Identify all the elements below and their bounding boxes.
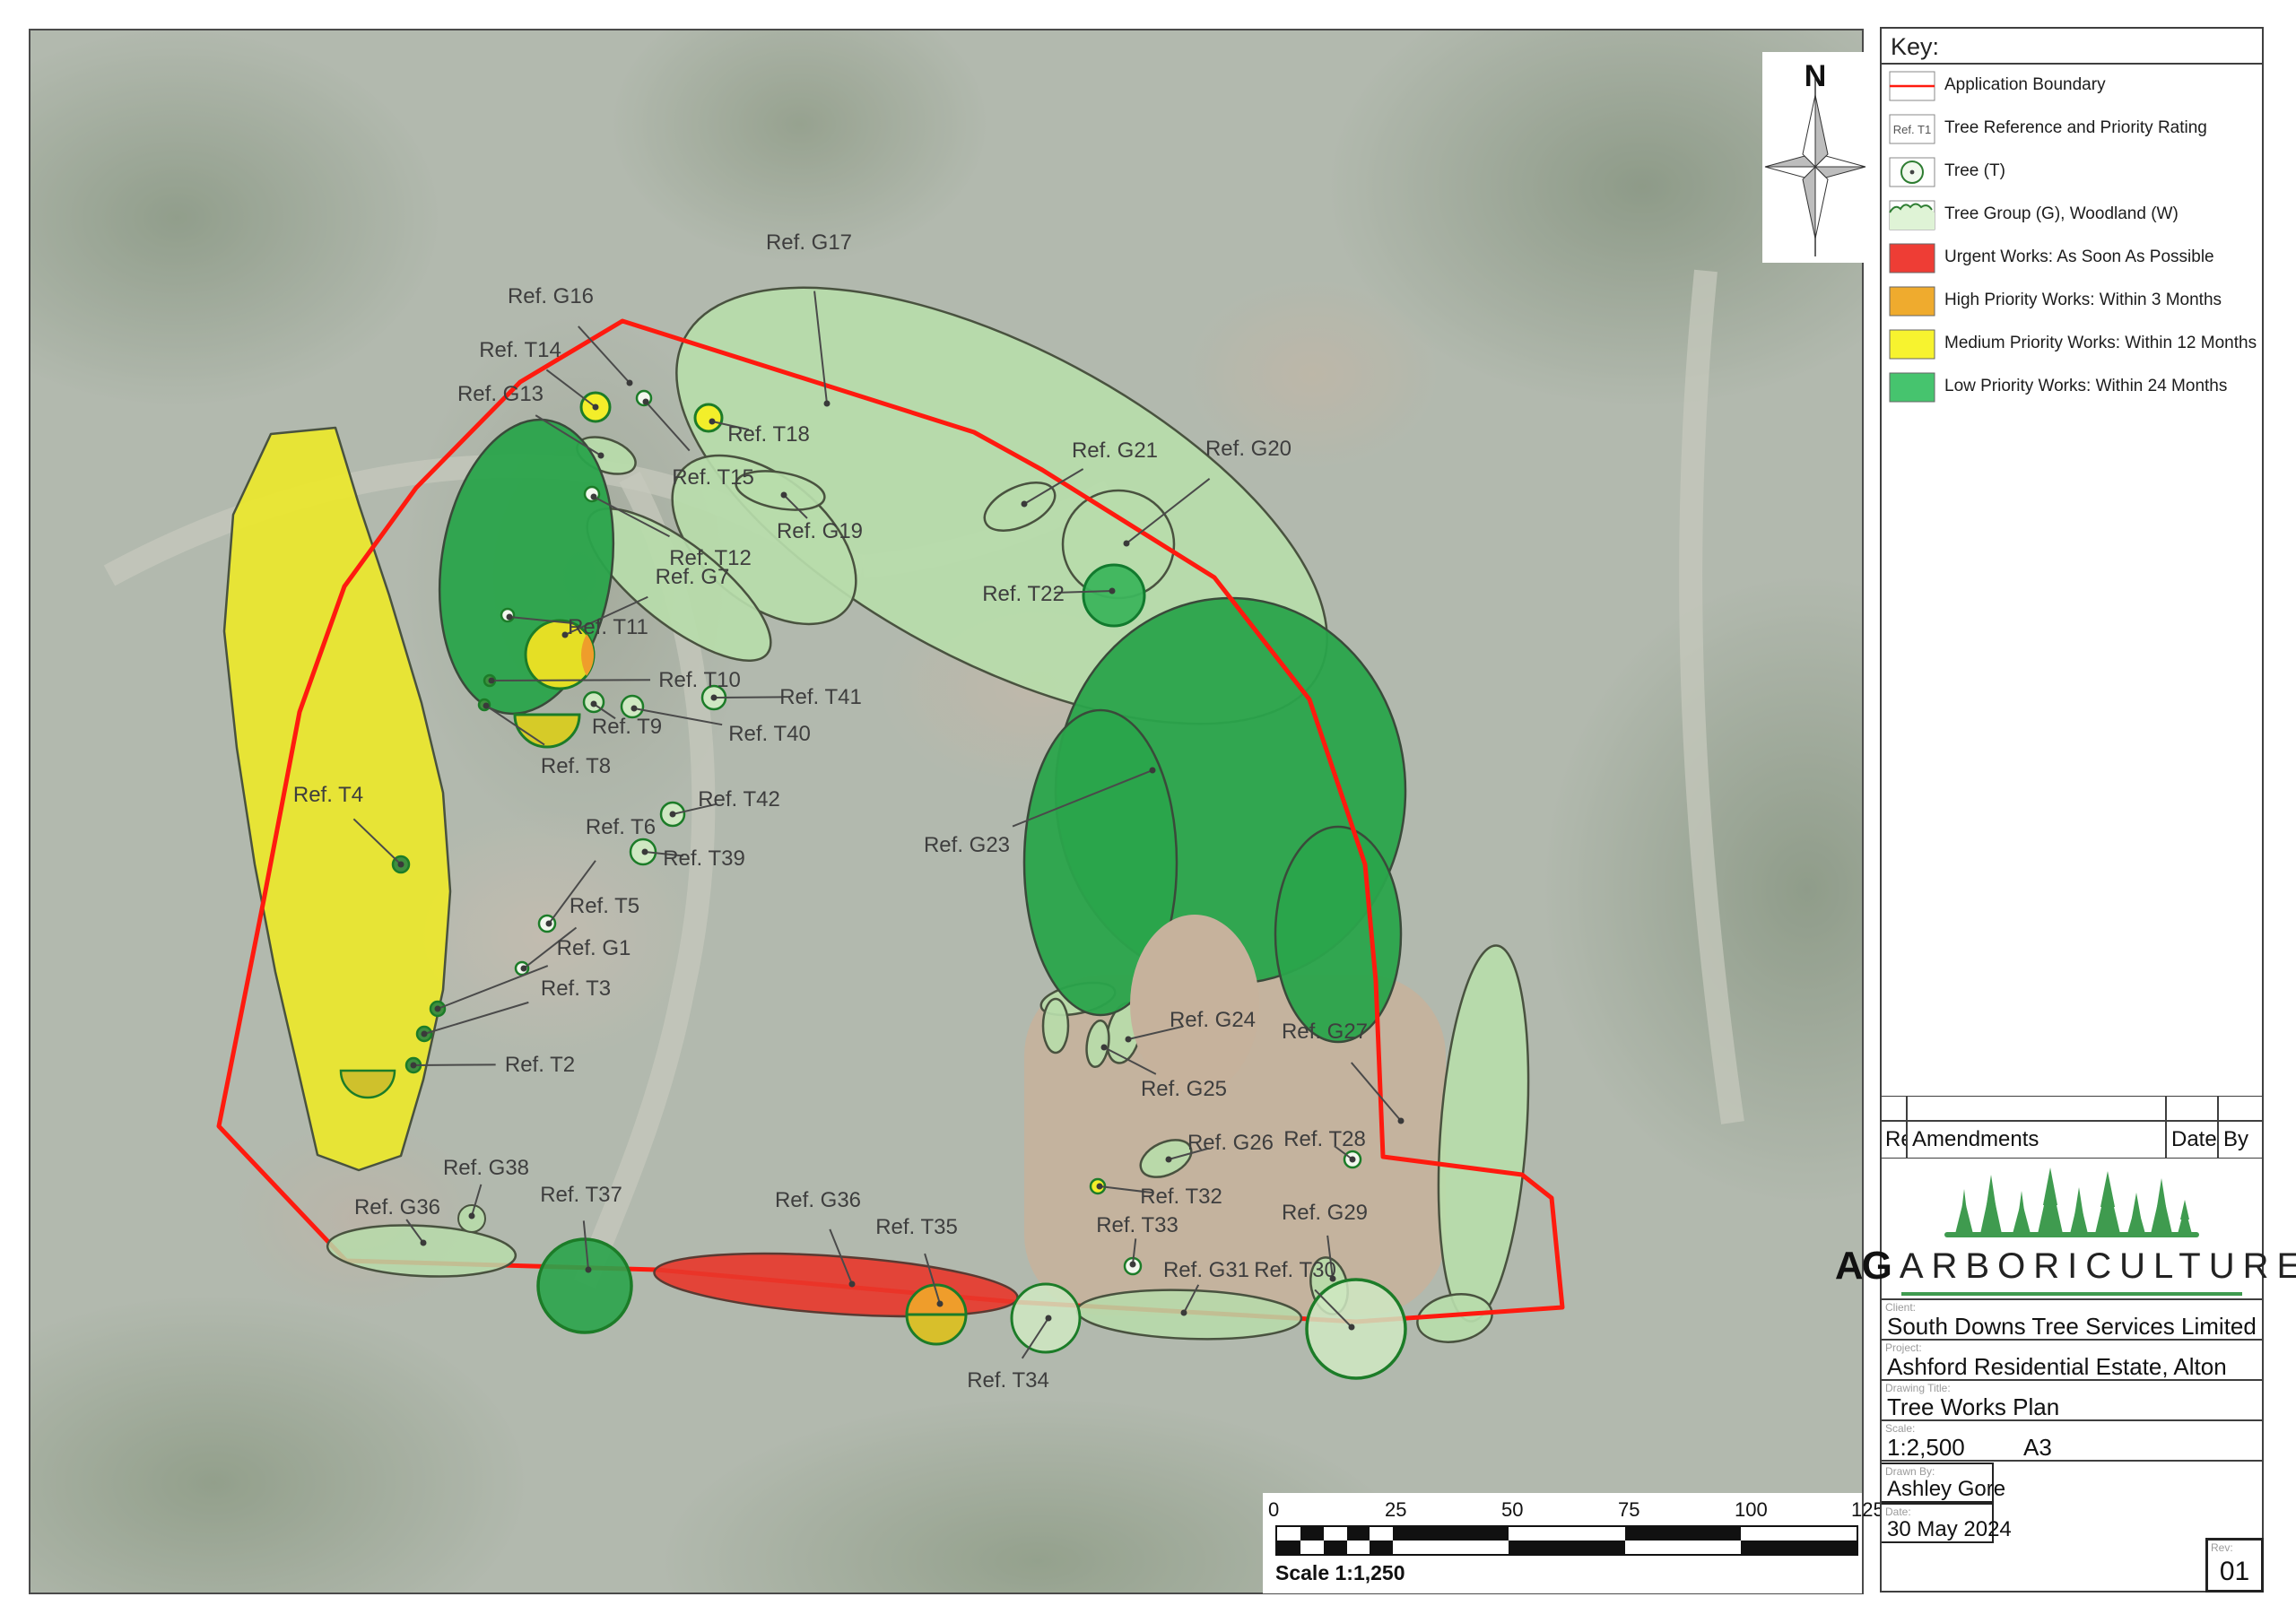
- scale-bar-cell: [1324, 1541, 1347, 1554]
- logo-underline: [1901, 1292, 2242, 1296]
- map-label: Ref. T4: [293, 783, 363, 807]
- leader-dot: [489, 678, 495, 684]
- scale-bar-cell: [1625, 1527, 1741, 1541]
- map-label: Ref. T11: [568, 615, 648, 639]
- map-label: Ref. G20: [1205, 437, 1291, 461]
- map-label: Ref. T5: [570, 894, 639, 918]
- map-label: Ref. G17: [766, 230, 852, 255]
- map-label: Ref. T6: [586, 815, 656, 839]
- scale-bar-cell: [1300, 1527, 1324, 1541]
- scale-bar-rows: [1275, 1525, 1858, 1556]
- map-label: Ref. T8: [541, 754, 611, 778]
- scale-bar-cell: [1741, 1541, 1857, 1554]
- scale-tick-label: 100: [1735, 1498, 1768, 1522]
- scale-tick-label: 0: [1268, 1498, 1279, 1522]
- map-label: Ref. T42: [698, 787, 780, 811]
- map-label: Ref. G7: [656, 565, 730, 589]
- application-boundary-swatch-icon: [1889, 71, 1935, 101]
- leader-dot: [398, 862, 404, 868]
- leader-dot: [709, 419, 716, 425]
- amendments-empty-cell: [1907, 1096, 2166, 1121]
- key-item: Tree Group (G), Woodland (W): [1882, 194, 2262, 237]
- key-item-label: Tree Group (G), Woodland (W): [1944, 204, 2179, 224]
- leader-dot: [1398, 1118, 1405, 1124]
- key-item: Urgent Works: As Soon As Possible: [1882, 237, 2262, 280]
- leader-dot: [586, 1267, 592, 1273]
- tree-reference-swatch-icon: Ref. T1: [1889, 114, 1935, 144]
- key-item-label: Urgent Works: As Soon As Possible: [1944, 247, 2214, 267]
- map-label: Ref. T15: [672, 465, 754, 490]
- leader-line: [714, 697, 783, 698]
- key-item: High Priority Works: Within 3 Months: [1882, 280, 2262, 323]
- titleblock-row: Project: Ashford Residential Estate, Alt…: [1882, 1341, 2262, 1381]
- key-item-label: High Priority Works: Within 3 Months: [1944, 291, 2222, 310]
- key-item-label: Application Boundary: [1944, 75, 2106, 95]
- priority-colour-swatch-icon: [1889, 243, 1935, 273]
- key-item-label: Tree Reference and Priority Rating: [1944, 118, 2207, 138]
- tree-t35-bottom: [907, 1315, 966, 1344]
- tree-group-g27: [1427, 942, 1539, 1324]
- woodland-notch: [1130, 915, 1259, 1094]
- scale-bar-cell: [1509, 1541, 1624, 1554]
- scale-tick-label: 75: [1618, 1498, 1639, 1522]
- date-box: Date: 30 May 2024: [1882, 1503, 1994, 1543]
- leader-dot: [1109, 588, 1116, 595]
- tree-symbol-yellow: [695, 404, 722, 431]
- rev-value: 01: [2208, 1557, 2261, 1587]
- woodland-g23: [1275, 827, 1401, 1042]
- tree-group-swatch-icon: [1889, 200, 1935, 230]
- map-label: Ref. T30: [1254, 1258, 1336, 1282]
- priority-colour-swatch-icon: [1889, 329, 1935, 360]
- map-label: Ref. T22: [982, 582, 1065, 606]
- scale-bar-cell: [1741, 1527, 1857, 1541]
- map-label: Ref. G23: [924, 833, 1010, 857]
- scale-bar-cell: [1370, 1541, 1393, 1554]
- leader-line: [578, 326, 630, 383]
- tree-t37: [538, 1239, 631, 1332]
- map-label: Ref. G13: [457, 382, 544, 406]
- key-item-label: Low Priority Works: Within 24 Months: [1944, 377, 2227, 396]
- map-label: Ref. T40: [728, 722, 811, 746]
- map-label: Ref. G24: [1170, 1008, 1256, 1032]
- titleblock-fields: Client: South Downs Tree Services Limite…: [1882, 1300, 2262, 1462]
- map-label: Ref. T2: [505, 1053, 575, 1077]
- scale-bar-cell: [1324, 1527, 1347, 1541]
- leader-dot: [781, 492, 787, 499]
- map-label: Ref. G36: [775, 1188, 861, 1212]
- amendments-header-by: By: [2218, 1121, 2264, 1159]
- rev-box: Rev: 01: [2205, 1538, 2264, 1593]
- scale-bar-cell: [1625, 1541, 1741, 1554]
- leader-dot: [937, 1301, 944, 1307]
- map-label: Ref. T34: [967, 1368, 1049, 1393]
- leader-dot: [1046, 1315, 1052, 1322]
- leader-dot: [670, 811, 676, 818]
- leader-dot: [591, 701, 597, 707]
- map-panel: Ref. G17Ref. G16Ref. T14Ref. G13Ref. T18…: [29, 29, 1864, 1594]
- title-panel: Key: Application Boundary Ref. T1 Tree R…: [1880, 27, 2264, 1593]
- trees-logo-icon: [1937, 1164, 2206, 1241]
- north-arrow: N: [1762, 52, 1868, 263]
- tree-works-plan-page: { "key": { "title": "Key:", "items": [ {…: [0, 0, 2296, 1623]
- date-label: Date:: [1885, 1506, 1911, 1518]
- leader-dot: [546, 921, 552, 927]
- scale-bar-cell: [1300, 1541, 1324, 1554]
- titleblock-row-value: Tree Works Plan: [1887, 1393, 2059, 1421]
- scale-caption: Scale 1:1,250: [1275, 1561, 1405, 1585]
- leader-dot: [1350, 1157, 1356, 1163]
- map-label: Ref. T33: [1096, 1213, 1178, 1237]
- leader-dot: [627, 380, 633, 386]
- drawn-by-label: Drawn By:: [1885, 1465, 1935, 1478]
- map-label: Ref. G21: [1072, 438, 1158, 463]
- leader-dot: [1097, 1184, 1103, 1190]
- map-label: Ref. G36: [354, 1195, 440, 1219]
- leader-dot: [1166, 1157, 1172, 1163]
- scale-bar-cell: [1347, 1541, 1370, 1554]
- scale-bar-cell: [1370, 1527, 1393, 1541]
- leader-dot: [598, 453, 604, 459]
- key-item-label: Medium Priority Works: Within 12 Months: [1944, 334, 2257, 353]
- leader-dot: [421, 1240, 427, 1246]
- amendments-header-date: Date: [2166, 1121, 2218, 1159]
- drawn-by-box: Drawn By: Ashley Gore: [1882, 1462, 1994, 1503]
- logo-mark: AG: [1835, 1244, 1891, 1289]
- leader-line: [413, 1064, 496, 1065]
- titleblock-row-label: Scale:: [1885, 1422, 1915, 1435]
- leader-dot: [1124, 541, 1130, 547]
- leader-dot: [642, 849, 648, 855]
- map-label: Ref. G31: [1163, 1258, 1249, 1282]
- svg-text:Ref. T1: Ref. T1: [1893, 123, 1931, 136]
- tree-t30: [1307, 1280, 1405, 1378]
- titleblock-row-label: Drawing Title:: [1885, 1382, 1951, 1394]
- leader-dot: [507, 614, 513, 621]
- titleblock-row-value: 1:2,500: [1887, 1434, 1965, 1462]
- map-overlay: Ref. G17Ref. G16Ref. T14Ref. G13Ref. T18…: [30, 30, 1864, 1594]
- key-item: Ref. T1 Tree Reference and Priority Rati…: [1882, 108, 2262, 151]
- leader-dot: [591, 494, 597, 500]
- titleblock-row-value: Ashford Residential Estate, Alton: [1887, 1353, 2227, 1381]
- map-label: Ref. G27: [1282, 1020, 1368, 1044]
- map-label: Ref. G19: [777, 519, 863, 543]
- tree-group-g36-left: [326, 1221, 517, 1281]
- leader-dot: [1126, 1037, 1132, 1043]
- leader-dot: [1150, 768, 1156, 774]
- priority-colour-swatch-icon: [1889, 286, 1935, 317]
- map-label: Ref. T41: [779, 685, 862, 709]
- map-label: Ref. G1: [557, 936, 631, 960]
- titleblock-row: Drawing Title: Tree Works Plan: [1882, 1381, 2262, 1421]
- paper-size: A3: [2023, 1434, 2052, 1462]
- tree-symbol-swatch-icon: [1889, 157, 1935, 187]
- titleblock-row: Client: South Downs Tree Services Limite…: [1882, 1300, 2262, 1341]
- key-item: Tree (T): [1882, 151, 2262, 194]
- priority-colour-swatch-icon: [1889, 372, 1935, 403]
- key-item: Application Boundary: [1882, 65, 2262, 108]
- amendments-table: Rev Amendments Date By: [1880, 1096, 2264, 1159]
- amendments-header-amendments: Amendments: [1907, 1121, 2166, 1159]
- map-label: Ref. T37: [540, 1183, 622, 1207]
- tree-group-g24: [1043, 999, 1068, 1053]
- map-label: Ref. T35: [875, 1215, 958, 1239]
- scale-tick-label: 25: [1385, 1498, 1406, 1522]
- map-label: Ref. T3: [541, 976, 611, 1001]
- amendments-empty-cell: [2166, 1096, 2218, 1121]
- leader-dot: [824, 401, 831, 407]
- map-label: Ref. T9: [592, 715, 662, 739]
- amendments-empty-cell: [1880, 1096, 1907, 1121]
- date-value: 30 May 2024: [1887, 1517, 2012, 1542]
- amendments-empty-cell: [2218, 1096, 2264, 1121]
- titleblock-row: Scale: 1:2,500A3: [1882, 1421, 2262, 1462]
- leader-dot: [483, 703, 490, 709]
- road: [1691, 271, 1733, 1123]
- scale-tick-label: 50: [1501, 1498, 1523, 1522]
- drawn-by-value: Ashley Gore: [1887, 1477, 2005, 1502]
- leader-dot: [422, 1031, 428, 1037]
- leader-dot: [1181, 1310, 1187, 1316]
- logo-wordmark: ARBORICULTURE: [1900, 1246, 2296, 1287]
- map-label: Ref. T18: [727, 422, 810, 447]
- company-logo: AG ARBORICULTURE: [1882, 1159, 2262, 1300]
- leader-dot: [711, 695, 717, 701]
- leader-line: [491, 680, 650, 681]
- key-item: Medium Priority Works: Within 12 Months: [1882, 323, 2262, 366]
- leader-dot: [593, 404, 599, 411]
- key-title: Key:: [1882, 29, 2262, 65]
- map-label: Ref. G26: [1187, 1131, 1274, 1155]
- leader-dot: [849, 1281, 856, 1288]
- map-label: Ref. G38: [443, 1156, 529, 1180]
- leader-dot: [631, 706, 638, 712]
- map-label: Ref. T28: [1283, 1127, 1366, 1151]
- titleblock-row-label: Project:: [1885, 1341, 1922, 1354]
- titleblock-row-value: South Downs Tree Services Limited: [1887, 1313, 2257, 1341]
- tree-t22: [1083, 565, 1144, 626]
- leader-dot: [469, 1213, 475, 1219]
- map-label: Ref. G16: [508, 284, 594, 308]
- scale-bar: 0255075100125m Scale 1:1,250: [1263, 1493, 1862, 1593]
- scale-bar-cell: [1509, 1527, 1624, 1541]
- map-label: Ref. T32: [1140, 1185, 1222, 1209]
- scale-bar-cell: [1277, 1527, 1300, 1541]
- titleblock-row-label: Client:: [1885, 1301, 1916, 1314]
- amendments-header-rev: Rev: [1880, 1121, 1907, 1159]
- scale-bar-cell: [1393, 1541, 1509, 1554]
- leader-line: [438, 966, 548, 1009]
- scale-bar-cell: [1277, 1541, 1300, 1554]
- scale-bar-cell: [1393, 1527, 1509, 1541]
- key-item: Low Priority Works: Within 24 Months: [1882, 366, 2262, 409]
- north-label: N: [1762, 59, 1868, 94]
- key-items: Application Boundary Ref. T1 Tree Refere…: [1882, 65, 2262, 409]
- leader-dot: [643, 399, 649, 405]
- leader-line: [546, 369, 596, 407]
- map-label: Ref. G29: [1282, 1201, 1368, 1225]
- map-label: Ref. G25: [1141, 1077, 1227, 1101]
- rev-label: Rev:: [2211, 1541, 2233, 1554]
- leader-dot: [1022, 501, 1028, 508]
- map-label: Ref. T39: [663, 846, 745, 871]
- leader-dot: [1101, 1045, 1108, 1051]
- leader-dot: [411, 1063, 417, 1069]
- key-item-label: Tree (T): [1944, 161, 2005, 181]
- scale-bar-cell: [1347, 1527, 1370, 1541]
- leader-dot: [521, 966, 527, 972]
- leader-dot: [1349, 1324, 1355, 1331]
- leader-dot: [435, 1006, 441, 1012]
- map-label: Ref. T10: [658, 668, 741, 692]
- map-label: Ref. T14: [479, 338, 561, 362]
- leader-dot: [1130, 1262, 1136, 1268]
